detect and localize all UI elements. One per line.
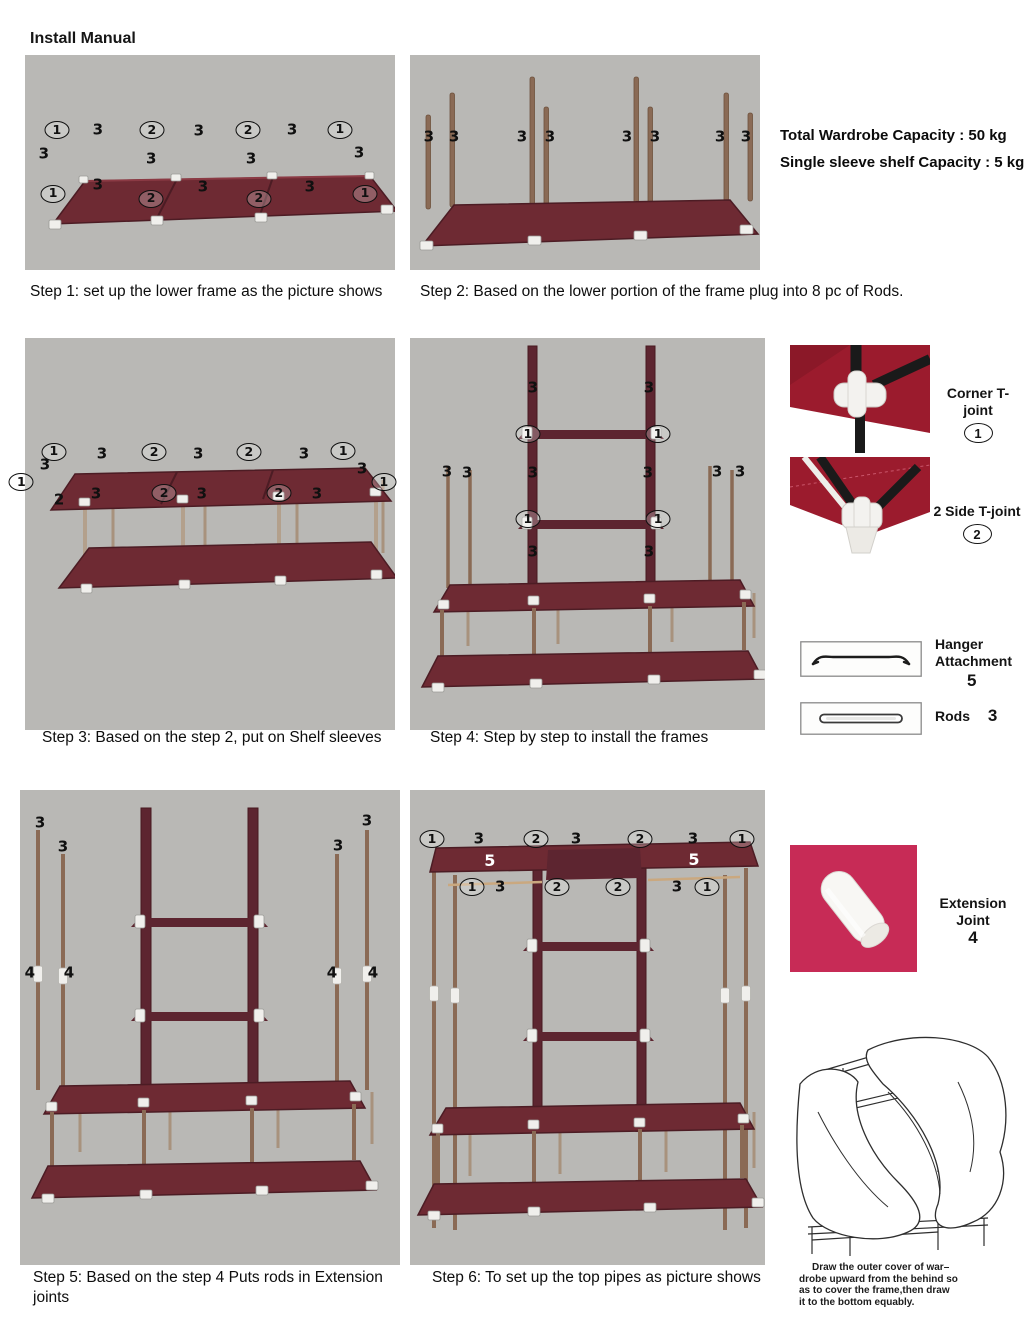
part-number-label: 3 <box>193 446 203 461</box>
part-number-label: 3 <box>528 380 538 395</box>
part-number-label: 3 <box>495 879 505 894</box>
part-number-label: 1 <box>327 121 352 139</box>
part-number-label: 3 <box>287 122 297 137</box>
part-number-label: 3 <box>197 487 207 502</box>
part-number-label: 3 <box>146 152 156 167</box>
part-number-label: 2 <box>139 121 164 139</box>
step3-photo: 13232313131232323 <box>25 338 395 730</box>
extension-rods-illustration <box>20 790 400 1265</box>
wardrobe-cover-illustration <box>788 1022 1023 1260</box>
part-number-label: 3 <box>715 129 725 144</box>
sleeve-capacity-text: Single sleeve shelf Capacity : 5 kg <box>780 149 1024 176</box>
part-number-label: 1 <box>460 878 485 896</box>
side-tjoint-illustration <box>790 457 930 569</box>
part-number-label: 2 <box>628 830 653 848</box>
lower-frame-illustration <box>25 55 395 270</box>
part-number-label: 3 <box>39 146 49 161</box>
extension-joint-label: Extension Joint <box>922 895 1024 929</box>
part-number-label: 3 <box>571 831 581 846</box>
part-number-label: 3 <box>622 129 632 144</box>
part-number-label: 2 <box>152 484 177 502</box>
part-number-label: 1 <box>9 473 34 491</box>
corner-tjoint-count: 1 <box>964 423 993 443</box>
step6-photo: 132323155132231 <box>410 790 765 1265</box>
step2-photo: 33333333 <box>410 55 760 270</box>
extension-joint-label-block: Extension Joint 4 <box>922 895 1024 946</box>
part-number-label: 3 <box>528 545 538 560</box>
extension-joint-count: 4 <box>922 929 1024 946</box>
part-number-label: 1 <box>695 878 720 896</box>
step1-caption: Step 1: set up the lower frame as the pi… <box>30 282 382 302</box>
part-number-label: 3 <box>58 840 68 855</box>
part-number-label: 3 <box>305 180 315 195</box>
cover-note-line3: as to cover the frame,then draw <box>799 1285 989 1297</box>
corner-tjoint-illustration <box>790 345 930 455</box>
part-number-label: 3 <box>442 465 452 480</box>
frame-with-rods-illustration <box>410 55 760 270</box>
page-title: Install Manual <box>30 30 136 48</box>
part-number-label: 3 <box>93 123 103 138</box>
cover-drawing <box>788 1022 1023 1260</box>
part-number-label: 1 <box>420 830 445 848</box>
part-number-label: 4 <box>368 965 378 980</box>
part-number-label: 3 <box>644 380 654 395</box>
part-number-label: 1 <box>41 185 66 203</box>
part-number-label: 3 <box>198 180 208 195</box>
corner-tjoint-label-block: Corner T-joint 1 <box>933 385 1023 443</box>
step4-photo: 33113333331133 <box>410 338 765 730</box>
cover-note-line4: it to the bottom equably. <box>799 1297 989 1309</box>
capacity-note: Total Wardrobe Capacity : 50 kg Single s… <box>780 122 1024 176</box>
part-number-label: 1 <box>331 442 356 460</box>
part-number-label: 3 <box>650 129 660 144</box>
hanger-attachment-label-line1: Hanger <box>935 636 1012 653</box>
part-number-label: 3 <box>354 145 364 160</box>
part-number-label: 4 <box>64 965 74 980</box>
side-tjoint-photo <box>790 457 930 569</box>
step1-photo: 132323133331323231 <box>25 55 395 270</box>
part-number-label: 2 <box>142 443 167 461</box>
step4-caption: Step 4: Step by step to install the fram… <box>430 728 708 748</box>
corner-tjoint-photo <box>790 345 930 455</box>
cover-note-line2: drobe upward from the behind so <box>799 1274 989 1286</box>
part-number-label: 3 <box>97 446 107 461</box>
part-number-label: 3 <box>517 129 527 144</box>
part-number-label: 4 <box>327 965 337 980</box>
part-number-label: 1 <box>729 830 754 848</box>
part-number-label: 1 <box>646 510 671 528</box>
part-number-label: 3 <box>735 465 745 480</box>
part-number-label: 3 <box>462 465 472 480</box>
part-number-label: 1 <box>646 425 671 443</box>
rods-count: 3 <box>988 706 997 725</box>
part-number-label: 3 <box>688 831 698 846</box>
part-number-label: 3 <box>528 465 538 480</box>
part-number-label: 1 <box>515 510 540 528</box>
step6-caption: Step 6: To set up the top pipes as pictu… <box>432 1268 761 1288</box>
part-number-label: 3 <box>644 545 654 560</box>
part-number-label: 3 <box>741 129 751 144</box>
part-number-label: 3 <box>712 465 722 480</box>
rods-label: Rods <box>935 708 970 724</box>
frame-install-illustration <box>410 338 765 730</box>
part-number-label: 1 <box>353 185 378 203</box>
side-tjoint-label-block: 2 Side T-joint 2 <box>928 503 1025 544</box>
part-number-label: 2 <box>236 443 261 461</box>
part-number-label: 5 <box>688 852 699 868</box>
hanger-attachment-drawing <box>800 641 922 677</box>
part-number-label: 3 <box>35 815 45 830</box>
step5-photo: 33334444 <box>20 790 400 1265</box>
step3-caption: Step 3: Based on the step 2, put on Shel… <box>42 728 382 748</box>
part-number-label: 3 <box>91 487 101 502</box>
top-pipes-illustration <box>410 790 765 1265</box>
part-number-label: 3 <box>40 458 50 473</box>
part-number-label: 3 <box>474 831 484 846</box>
part-number-label: 1 <box>44 121 69 139</box>
part-number-label: 3 <box>362 813 372 828</box>
corner-tjoint-label: Corner T-joint <box>947 385 1009 418</box>
part-number-label: 3 <box>357 462 367 477</box>
part-number-label: 2 <box>266 484 291 502</box>
part-number-label: 3 <box>643 465 653 480</box>
part-number-label: 2 <box>236 121 261 139</box>
total-capacity-text: Total Wardrobe Capacity : 50 kg <box>780 122 1024 149</box>
extension-joint-photo <box>790 845 917 972</box>
hanger-attachment-label-block: Hanger Attachment 5 <box>935 636 1012 689</box>
hanger-attachment-label-line2: Attachment <box>935 653 1012 670</box>
part-number-label: 1 <box>371 473 396 491</box>
part-number-label: 2 <box>54 492 64 507</box>
hanger-attachment-count: 5 <box>935 672 1012 689</box>
part-number-label: 3 <box>299 446 309 461</box>
side-tjoint-count: 2 <box>963 524 992 544</box>
part-number-label: 3 <box>246 152 256 167</box>
rods-drawing <box>800 702 922 735</box>
step2-caption: Step 2: Based on the lower portion of th… <box>420 282 903 302</box>
rods-label-block: Rods 3 <box>935 707 997 725</box>
part-number-label: 3 <box>194 124 204 139</box>
step5-caption: Step 5: Based on the step 4 Puts rods in… <box>33 1268 411 1308</box>
part-number-label: 2 <box>606 878 631 896</box>
part-number-label: 3 <box>449 129 459 144</box>
part-number-label: 1 <box>515 425 540 443</box>
cover-instruction-note: Draw the outer cover of war– drobe upwar… <box>799 1262 989 1308</box>
part-number-label: 2 <box>246 190 271 208</box>
part-number-label: 3 <box>312 487 322 502</box>
part-number-label: 3 <box>93 178 103 193</box>
part-number-label: 3 <box>424 129 434 144</box>
part-number-label: 3 <box>545 129 555 144</box>
side-tjoint-label: 2 Side T-joint <box>933 503 1020 519</box>
cover-note-line1: Draw the outer cover of war– <box>799 1262 989 1274</box>
part-number-label: 5 <box>484 853 495 869</box>
part-number-label: 3 <box>672 879 682 894</box>
part-number-label: 3 <box>333 839 343 854</box>
install-manual-sheet: Install Manual 132323133331323231 <box>0 0 1025 1333</box>
extension-joint-illustration <box>790 845 917 972</box>
hanger-attachment-icon <box>800 641 922 677</box>
part-number-label: 2 <box>139 190 164 208</box>
part-number-label: 2 <box>544 878 569 896</box>
part-number-label: 2 <box>524 830 549 848</box>
part-number-label: 4 <box>25 965 35 980</box>
rods-icon <box>800 702 922 735</box>
shelf-sleeves-illustration <box>25 338 395 730</box>
